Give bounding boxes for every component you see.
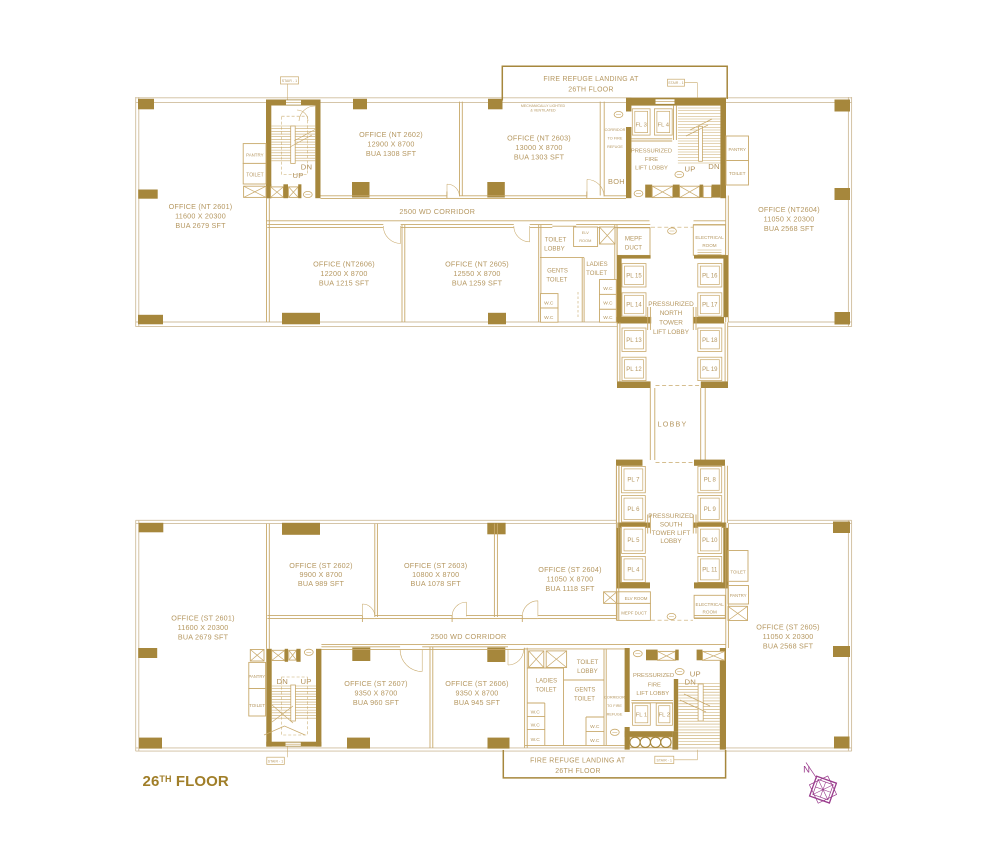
svg-text:W.C: W.C xyxy=(590,724,600,730)
svg-text:FL 4: FL 4 xyxy=(658,123,670,129)
svg-text:REFUGE: REFUGE xyxy=(607,145,623,149)
svg-text:ELV: ELV xyxy=(582,230,589,235)
svg-text:TOILET: TOILET xyxy=(574,697,595,703)
svg-text:STAIR - 1: STAIR - 1 xyxy=(282,79,298,83)
svg-text:ELV ROOM: ELV ROOM xyxy=(625,596,648,601)
svg-text:OFFICE (ST 2603): OFFICE (ST 2603) xyxy=(404,561,467,570)
svg-text:FIRE: FIRE xyxy=(645,157,658,163)
svg-text:TOILET: TOILET xyxy=(586,271,607,277)
svg-text:11600 X 20300: 11600 X 20300 xyxy=(178,623,229,632)
svg-text:ROOM: ROOM xyxy=(579,238,591,243)
svg-text:TO FIRE: TO FIRE xyxy=(608,137,623,141)
svg-text:LOBBY: LOBBY xyxy=(660,538,682,545)
svg-text:11050 X 20300: 11050 X 20300 xyxy=(763,632,814,641)
svg-text:11050 X 20300: 11050 X 20300 xyxy=(764,215,815,224)
svg-text:11050 X 8700: 11050 X 8700 xyxy=(547,575,594,584)
svg-text:ELECTRICAL: ELECTRICAL xyxy=(696,602,725,607)
svg-text:PL 4: PL 4 xyxy=(627,568,640,574)
svg-text:OFFICE (NT 2603): OFFICE (NT 2603) xyxy=(507,134,571,143)
svg-text:DN: DN xyxy=(708,162,720,171)
svg-text:OFFICE (NT2606): OFFICE (NT2606) xyxy=(313,260,375,269)
svg-text:LOBBY: LOBBY xyxy=(544,246,565,253)
svg-text:12200 X 8700: 12200 X 8700 xyxy=(320,269,367,278)
svg-text:UP: UP xyxy=(684,165,695,174)
svg-text:9350 X 8700: 9350 X 8700 xyxy=(456,689,499,698)
svg-text:W.C: W.C xyxy=(544,301,554,307)
svg-text:MECHANICALLY LIGHTED: MECHANICALLY LIGHTED xyxy=(521,104,566,108)
svg-text:BUA 1215 SFT: BUA 1215 SFT xyxy=(319,279,370,288)
svg-text:26TH FLOOR: 26TH FLOOR xyxy=(555,768,601,775)
svg-text:W.C: W.C xyxy=(603,286,613,292)
svg-text:TOWER LIFT: TOWER LIFT xyxy=(652,530,691,537)
svg-text:BUA 2568 SFT: BUA 2568 SFT xyxy=(764,224,815,233)
svg-text:BUA 2679 SFT: BUA 2679 SFT xyxy=(175,221,226,230)
svg-text:FL 3: FL 3 xyxy=(636,123,647,129)
svg-text:UP: UP xyxy=(300,677,311,686)
svg-text:GENTS: GENTS xyxy=(547,269,568,275)
svg-text:PL 9: PL 9 xyxy=(704,507,717,513)
svg-text:GENTS: GENTS xyxy=(575,688,596,694)
svg-text:DN: DN xyxy=(276,677,288,686)
svg-text:12900 X 8700: 12900 X 8700 xyxy=(367,140,414,149)
svg-text:& VENTILATED: & VENTILATED xyxy=(530,109,556,113)
svg-text:MEPF: MEPF xyxy=(625,235,642,242)
svg-text:PL 15: PL 15 xyxy=(626,273,642,279)
svg-text:OFFICE (NT 2601): OFFICE (NT 2601) xyxy=(169,202,233,211)
svg-text:LADIES: LADIES xyxy=(536,679,557,685)
svg-text:LOBBY: LOBBY xyxy=(658,420,688,429)
svg-text:OFFICE (ST 2605): OFFICE (ST 2605) xyxy=(756,623,819,632)
svg-text:FL 1: FL 1 xyxy=(636,713,647,719)
svg-text:W.C: W.C xyxy=(531,709,541,715)
svg-text:PL 19: PL 19 xyxy=(702,367,718,373)
svg-text:OFFICE (NT 2605): OFFICE (NT 2605) xyxy=(445,260,509,269)
svg-text:PL 5: PL 5 xyxy=(627,538,640,544)
svg-text:TOWER: TOWER xyxy=(659,319,683,326)
svg-text:ELECTRICAL: ELECTRICAL xyxy=(695,235,724,240)
svg-text:W.C: W.C xyxy=(531,737,541,743)
svg-text:PL 7: PL 7 xyxy=(627,478,640,484)
svg-text:OFFICE (ST 2606): OFFICE (ST 2606) xyxy=(445,679,508,688)
svg-text:TO FIRE: TO FIRE xyxy=(607,704,622,708)
svg-text:BUA 1308 SFT: BUA 1308 SFT xyxy=(366,149,417,158)
svg-text:OFFICE (ST 2607): OFFICE (ST 2607) xyxy=(344,679,407,688)
svg-text:11600 X 20300: 11600 X 20300 xyxy=(175,212,226,221)
svg-text:BUA 989 SFT: BUA 989 SFT xyxy=(298,579,345,588)
svg-text:W.C: W.C xyxy=(590,738,600,744)
svg-text:FIRE: FIRE xyxy=(648,682,661,688)
svg-text:PL 12: PL 12 xyxy=(626,367,642,373)
svg-text:NORTH: NORTH xyxy=(660,310,683,317)
svg-text:LIFT LOBBY: LIFT LOBBY xyxy=(653,329,690,336)
svg-text:PL 14: PL 14 xyxy=(626,303,642,309)
svg-text:DUCT: DUCT xyxy=(625,244,642,251)
svg-text:TOILET: TOILET xyxy=(729,171,746,177)
svg-text:2500 WD CORRIDOR: 2500 WD CORRIDOR xyxy=(431,632,507,641)
svg-text:10800 X 8700: 10800 X 8700 xyxy=(412,570,459,579)
svg-text:ROOM: ROOM xyxy=(703,609,717,614)
svg-text:BUA 960 SFT: BUA 960 SFT xyxy=(353,698,400,707)
svg-text:13000 X 8700: 13000 X 8700 xyxy=(515,143,562,152)
svg-text:W.C: W.C xyxy=(544,315,554,321)
svg-text:CORRIDOR: CORRIDOR xyxy=(604,696,625,700)
svg-text:LOBBY: LOBBY xyxy=(577,668,598,675)
svg-text:TOILET: TOILET xyxy=(246,173,263,179)
svg-text:BUA 1259 SFT: BUA 1259 SFT xyxy=(452,279,503,288)
svg-text:TOILET: TOILET xyxy=(577,659,599,666)
svg-text:W.C: W.C xyxy=(531,723,541,729)
svg-text:W.C: W.C xyxy=(603,301,613,307)
svg-text:PRESSURIZED: PRESSURIZED xyxy=(631,149,672,155)
svg-text:SOUTH: SOUTH xyxy=(660,521,683,528)
svg-text:PL 10: PL 10 xyxy=(702,538,718,544)
svg-text:BUA 1303 SFT: BUA 1303 SFT xyxy=(514,152,565,161)
svg-text:PL 18: PL 18 xyxy=(702,338,718,344)
svg-text:FL 2: FL 2 xyxy=(659,713,670,719)
svg-text:9900 X 8700: 9900 X 8700 xyxy=(300,570,343,579)
svg-text:26TH FLOOR: 26TH FLOOR xyxy=(143,773,229,790)
svg-text:OFFICE (NT 2602): OFFICE (NT 2602) xyxy=(359,130,423,139)
svg-text:LIFT LOBBY: LIFT LOBBY xyxy=(636,691,669,697)
svg-text:N: N xyxy=(803,765,810,776)
svg-text:BOH: BOH xyxy=(608,177,625,186)
svg-text:BUA 945 SFT: BUA 945 SFT xyxy=(454,698,501,707)
svg-text:OFFICE (ST 2601): OFFICE (ST 2601) xyxy=(171,614,234,623)
svg-text:TOILET: TOILET xyxy=(249,703,265,708)
svg-text:PL 6: PL 6 xyxy=(627,507,640,513)
svg-text:TOILET: TOILET xyxy=(546,277,567,283)
svg-text:ROOM: ROOM xyxy=(702,243,716,248)
svg-text:PL 8: PL 8 xyxy=(704,478,717,484)
svg-text:DN: DN xyxy=(685,678,697,687)
svg-text:PL 16: PL 16 xyxy=(702,273,718,279)
svg-text:STAIR - 1: STAIR - 1 xyxy=(657,759,673,763)
svg-text:BUA 1078 SFT: BUA 1078 SFT xyxy=(411,579,462,588)
svg-text:PL 13: PL 13 xyxy=(626,338,642,344)
svg-text:UP: UP xyxy=(292,171,303,180)
svg-text:BUA 1118 SFT: BUA 1118 SFT xyxy=(545,584,595,593)
svg-text:BUA 2679 SFT: BUA 2679 SFT xyxy=(178,633,229,642)
svg-text:TOILET: TOILET xyxy=(536,688,557,694)
svg-text:OFFICE (ST 2602): OFFICE (ST 2602) xyxy=(289,561,352,570)
svg-text:OFFICE (NT2604): OFFICE (NT2604) xyxy=(758,205,820,214)
svg-text:FIRE REFUGE LANDING AT: FIRE REFUGE LANDING AT xyxy=(530,757,626,764)
svg-text:W.C: W.C xyxy=(603,315,613,321)
svg-text:TOILET: TOILET xyxy=(545,237,567,244)
svg-text:STAIR - 1: STAIR - 1 xyxy=(268,759,284,763)
svg-text:PANTRY: PANTRY xyxy=(248,674,265,679)
svg-text:PANTRY: PANTRY xyxy=(728,147,745,152)
svg-text:STAIR - 1: STAIR - 1 xyxy=(668,81,684,85)
svg-text:PRESSURIZED: PRESSURIZED xyxy=(648,301,694,308)
svg-text:MEPF DUCT: MEPF DUCT xyxy=(621,611,647,616)
svg-text:TOILET: TOILET xyxy=(730,570,746,575)
svg-text:OFFICE (ST 2604): OFFICE (ST 2604) xyxy=(538,565,601,574)
svg-text:12550 X 8700: 12550 X 8700 xyxy=(453,269,500,278)
svg-text:LIFT LOBBY: LIFT LOBBY xyxy=(635,165,668,171)
svg-text:26TH FLOOR: 26TH FLOOR xyxy=(568,87,614,94)
svg-text:PRESSURIZED: PRESSURIZED xyxy=(633,673,674,679)
svg-text:PANTRY: PANTRY xyxy=(246,153,263,158)
svg-text:2500 WD CORRIDOR: 2500 WD CORRIDOR xyxy=(399,207,475,216)
svg-text:FIRE REFUGE LANDING AT: FIRE REFUGE LANDING AT xyxy=(543,76,639,83)
svg-text:9350 X 8700: 9350 X 8700 xyxy=(355,689,398,698)
svg-text:PANTRY: PANTRY xyxy=(730,593,747,598)
svg-text:PRESSURIZED: PRESSURIZED xyxy=(648,513,694,520)
svg-text:PL 17: PL 17 xyxy=(702,303,718,309)
svg-text:BUA 2568 SFT: BUA 2568 SFT xyxy=(763,642,814,651)
svg-text:CORRIDOR: CORRIDOR xyxy=(605,128,626,132)
svg-text:PL 11: PL 11 xyxy=(702,568,718,574)
svg-text:LADIES: LADIES xyxy=(586,262,607,268)
svg-text:REFUGE: REFUGE xyxy=(607,713,623,717)
